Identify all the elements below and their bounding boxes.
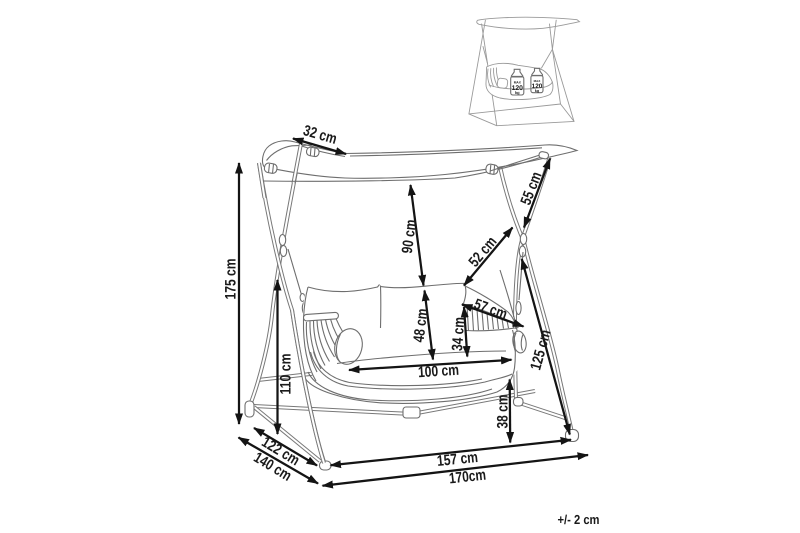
svg-text:kg: kg [535,89,540,93]
svg-text:34 cm: 34 cm [449,316,468,351]
svg-text:38 cm: 38 cm [495,395,512,429]
svg-text:175 cm: 175 cm [223,259,240,300]
svg-text:kg: kg [515,90,520,95]
svg-text:110 cm: 110 cm [278,354,295,395]
svg-text:+/- 2 cm: +/- 2 cm [558,512,600,527]
svg-text:MAX: MAX [514,81,522,85]
svg-text:100 cm: 100 cm [418,362,460,382]
